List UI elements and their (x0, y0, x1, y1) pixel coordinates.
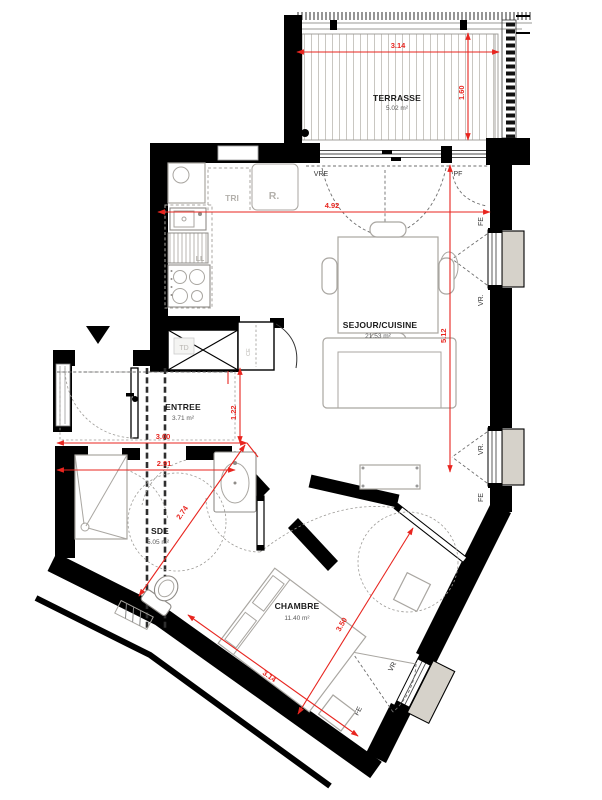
opening-label-fe2: FE (478, 493, 485, 502)
door-knob-icon (132, 396, 138, 402)
bedside-table (394, 573, 431, 612)
wall-inset-vent (218, 146, 258, 160)
wall-mullion (441, 146, 452, 163)
dim-entree-depth: 1.22 (229, 405, 238, 420)
window-swing (452, 457, 487, 483)
chair (322, 258, 337, 294)
opening-label-vr1: VR. (478, 294, 485, 306)
equip-label-ll: LL (196, 256, 205, 263)
wall-right-1 (490, 165, 512, 230)
wall-diagonal-east-upper (416, 503, 511, 663)
window-frame (488, 428, 502, 486)
console-table (360, 465, 420, 489)
shutter-box (502, 429, 524, 485)
dim-sejour-depth: 5.12 (439, 328, 448, 343)
equip-label-duct: TD (179, 345, 188, 352)
fridge-box (252, 164, 298, 210)
dim-sde-width: 2.91 (157, 459, 172, 468)
room-area-entree: 3.71 m² (172, 415, 195, 422)
room-area-sejour: 21.53 m² (365, 333, 391, 340)
window-swing (452, 234, 487, 259)
equip-label-ce: CE (246, 348, 252, 356)
sejour-furniture: SEJOUR/CUISINE 21.53 m² (322, 222, 456, 489)
sde: SDE 5.05 m² (75, 452, 256, 629)
chair (439, 258, 454, 294)
wall-terrace-left (284, 15, 302, 155)
room-area-sde: 5.05 m² (147, 539, 170, 546)
opening-label-vr3: VR (388, 661, 399, 673)
wall-top-right-corner (486, 138, 530, 165)
casement-leaf (352, 652, 416, 664)
terrace: TERRASSE 5.02 m² (297, 12, 532, 140)
room-label-sejour: SEJOUR/CUISINE (343, 320, 418, 330)
entry-arrow-icon (86, 326, 110, 344)
shutter-box (502, 231, 524, 287)
window-right-2: VR. FE (452, 426, 524, 502)
room-label-entree: ENTREE (165, 402, 201, 412)
dim-entree-width: 3.00 (156, 432, 171, 441)
equip-label-tri: TRI (225, 193, 239, 203)
room-area-terrasse: 5.02 m² (386, 105, 409, 112)
wall-entree-top-right (133, 350, 168, 366)
entrance-door-leaf (131, 368, 138, 438)
kitchen: TRI R. LL (165, 163, 298, 308)
floor-plan-drawing: TERRASSE 5.02 m² (0, 0, 602, 800)
door-swing-arc (260, 506, 396, 552)
bay-handle (391, 157, 401, 161)
dining-table (338, 237, 438, 333)
opening-label-fe1: FE (478, 217, 485, 226)
entrance-door (65, 368, 138, 438)
door-handle-icon (126, 393, 134, 397)
sde-door-leaf (257, 496, 264, 550)
terrace-drain (301, 129, 309, 137)
wall-sde-left (55, 446, 75, 558)
room-label-terrasse: TERRASSE (373, 93, 421, 103)
opening-label-vre: VRE (314, 171, 329, 178)
dim-line (139, 445, 245, 596)
dim-sejour-width: 4.92 (325, 201, 340, 210)
wall-niche (56, 364, 70, 426)
dim-terrace-width: 3.14 (391, 41, 406, 50)
room-label-chambre: CHAMBRE (275, 601, 320, 611)
terrace-railing-hatch (297, 12, 532, 20)
technical-shaft: TD (168, 330, 238, 370)
wall-kitchen-left (150, 143, 168, 372)
bay-handle (382, 150, 392, 154)
door-swing-arc (65, 368, 135, 438)
faucet-icon (198, 212, 202, 216)
dim-sde-diagonal: 2.74 (174, 503, 190, 521)
window-swing (352, 652, 393, 712)
wall-right-2 (490, 288, 512, 428)
sliding-door-leaf (394, 504, 471, 566)
water-heater-closet: CE (228, 322, 297, 384)
opening-label-vr2: VR. (478, 443, 485, 455)
floor-plan-page: TERRASSE 5.02 m² (0, 0, 602, 800)
equip-label-fridge: R. (269, 190, 280, 202)
opening-label-pf: PF (454, 171, 463, 178)
window-frame (488, 230, 502, 288)
railing-post (460, 20, 467, 30)
sofa (323, 338, 456, 408)
terrace-louver-screen (502, 20, 516, 138)
room-label-sde: SDE (151, 526, 169, 536)
dim-terrace-depth: 1.60 (457, 85, 466, 100)
wall-diagonal-east-lower (366, 703, 411, 763)
chair (370, 222, 406, 237)
wall-sde-chambre-b (288, 518, 338, 571)
room-area-chambre: 11.40 m² (284, 615, 310, 622)
waste-sorting-box (208, 168, 250, 212)
closet-door-leaf (276, 324, 297, 368)
railing-post (330, 20, 337, 30)
